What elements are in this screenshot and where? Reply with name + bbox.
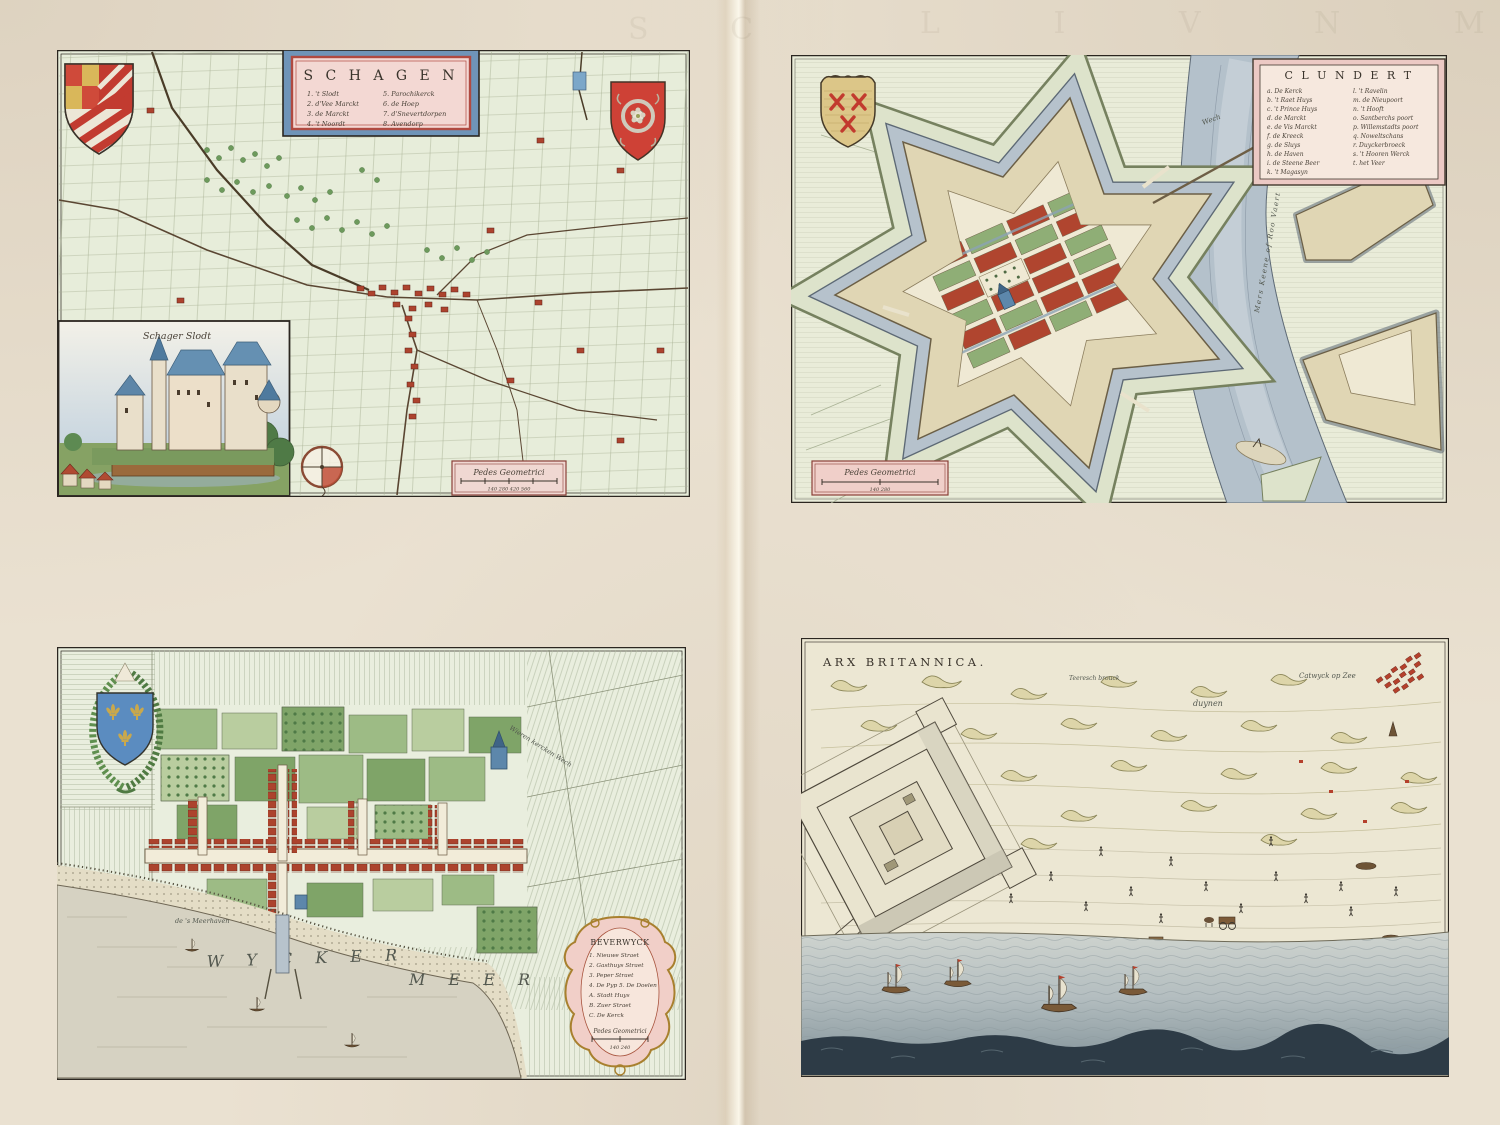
- beverwyck-legend-item: A. Stadt Huys: [588, 993, 630, 999]
- clundert-legend-item: g. de Sluys: [1267, 142, 1300, 149]
- dunes-label: duynen: [1193, 699, 1223, 708]
- clundert-scale-numbers: 140 280: [870, 487, 891, 493]
- schagen-scale-cartouche: Pedes Geometrici 140 280 420 560: [452, 461, 566, 495]
- clundert-scale-label: Pedes Geometrici: [843, 468, 916, 477]
- clundert-scale-cartouche: Pedes Geometrici 140 280: [812, 461, 948, 495]
- clundert-legend-item: q. Noweltschans: [1353, 133, 1403, 140]
- beverwyck-legend-item: 1. Nieuwe Straet: [589, 953, 640, 959]
- clundert-legend-item: l. 't Ravelin: [1353, 88, 1388, 95]
- clundert-legend-item: a. De Kerck: [1267, 88, 1303, 95]
- clundert-title: C L U N D E R T: [1284, 69, 1413, 82]
- map-schagen: S C H A G E N 1. 't Slodt 5. Parochikerc…: [57, 50, 690, 497]
- schagen-title: S C H A G E N: [304, 68, 459, 84]
- clundert-legend-item: o. Santberchs poort: [1353, 115, 1414, 122]
- clundert-legend-item: c. 't Prince Huys: [1267, 106, 1317, 113]
- schagen-legend-item: 8. Avendorp: [383, 120, 424, 128]
- beverwyck-legend-item: B. Zuer Straet: [588, 1003, 632, 1009]
- clundert-legend-item: r. Duyckerbroeck: [1353, 142, 1406, 149]
- page-fold: [716, 0, 760, 1125]
- atlas-spread: S C L I V N M E T: [0, 0, 1500, 1125]
- clundert-legend-item: f. de Kreeck: [1266, 133, 1304, 140]
- bleed-through-text-left: S C: [628, 12, 789, 47]
- clundert-legend-item: n. 't Hooft: [1353, 106, 1384, 113]
- clundert-legend-item: e. de Vis Marckt: [1267, 124, 1317, 131]
- schagen-legend-item: 3. de Marckt: [307, 110, 350, 118]
- clundert-legend-item: t. het Veer: [1353, 160, 1386, 167]
- clundert-legend-item: p. Willemstadts poort: [1353, 124, 1419, 131]
- village-label: Catwyck op Zee: [1299, 672, 1356, 680]
- schagen-legend-item: 7. d'Snevertdorpen: [383, 110, 446, 118]
- schagen-scale-label: Pedes Geometrici: [472, 468, 545, 477]
- beverwyck-title: BEVERWYCK: [590, 938, 650, 947]
- schagen-title-cartouche: S C H A G E N 1. 't Slodt 5. Parochikerc…: [283, 50, 479, 136]
- field-label: Teeresch brouck: [1069, 675, 1120, 682]
- clundert-legend-item: m. de Nieupoort: [1353, 97, 1403, 104]
- arx-title: ARX BRITANNICA.: [822, 655, 987, 669]
- map-clundert: Mers Keene of Roo Vaert: [791, 55, 1447, 503]
- clundert-legend-item: b. 't Raet Huys: [1267, 97, 1312, 104]
- harbor-label: de 's Meerhaven: [175, 917, 230, 925]
- schagen-legend-item: 4. 't Noordt: [306, 120, 346, 128]
- schagen-scale-numbers: 140 280 420 560: [488, 487, 532, 493]
- schagen-castle-inset: Schager Slodt: [59, 321, 295, 495]
- water-label-meer: M E E R: [408, 970, 539, 989]
- beverwyck-legend-item: C. De Kerck: [589, 1013, 624, 1019]
- schagen-legend-item: 2. d'Vee Marckt: [306, 100, 359, 108]
- church-building: [491, 747, 507, 769]
- clundert-legend-cartouche: C L U N D E R T a. De Kerck b. 't Raet H…: [1253, 59, 1445, 185]
- clundert-legend-item: k. 't Magasyn: [1267, 169, 1308, 176]
- schagen-legend-item: 6. de Hoep: [383, 100, 420, 108]
- clundert-legend-item: d. de Marckt: [1267, 115, 1307, 122]
- beverwyck-legend-item: 4. De Pyp 5. De Doelen: [588, 983, 657, 989]
- clundert-legend-item: i. de Steene Beer: [1267, 160, 1320, 167]
- beverwyck-scale-numbers: 140 240: [610, 1045, 631, 1051]
- map-arx-britannica: ARX BRITANNICA. Teeresch brouck duynen C…: [801, 638, 1449, 1077]
- bleed-through-text-right: L I V N M E T: [920, 6, 1500, 41]
- map-beverwyck: Wieren kercken Wech W Y C K E R M E E R …: [57, 647, 686, 1080]
- schagen-legend-item: 5. Parochikerck: [383, 90, 435, 98]
- schagen-legend-item: 1. 't Slodt: [307, 90, 339, 98]
- sea: [801, 932, 1449, 1075]
- castle-inset-label: Schager Slodt: [143, 331, 211, 342]
- beverwyck-legend-item: 3. Peper Straet: [589, 973, 634, 979]
- clundert-legend-item: h. de Haven: [1267, 151, 1304, 158]
- beverwyck-legend-item: 2. Gasthuys Straet: [588, 963, 644, 969]
- beverwyck-scale-label: Pedes Geometrici: [592, 1028, 646, 1035]
- clundert-legend-item: s. 't Hooren Werck: [1353, 151, 1410, 158]
